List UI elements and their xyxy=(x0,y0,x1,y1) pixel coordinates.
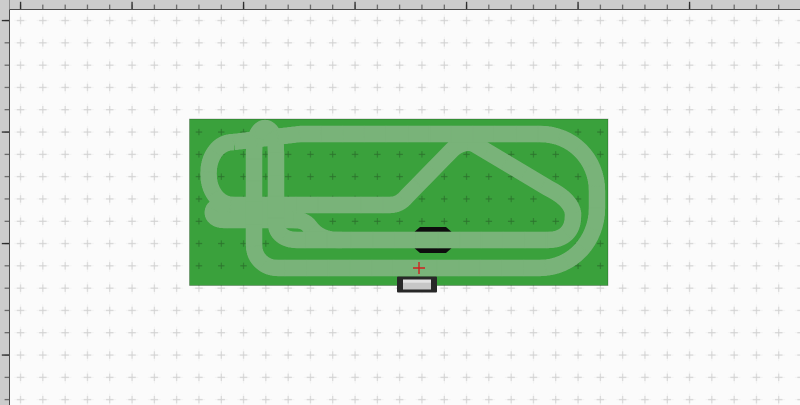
editor-stage xyxy=(0,0,800,405)
ruler-vertical-major-ticks xyxy=(0,10,10,405)
ruler-horizontal-major-ticks xyxy=(10,0,800,10)
design-canvas[interactable] xyxy=(0,0,800,405)
ruler-corner xyxy=(0,0,10,10)
power-base-highlight xyxy=(403,280,431,283)
power-base-piece[interactable] xyxy=(397,277,437,293)
